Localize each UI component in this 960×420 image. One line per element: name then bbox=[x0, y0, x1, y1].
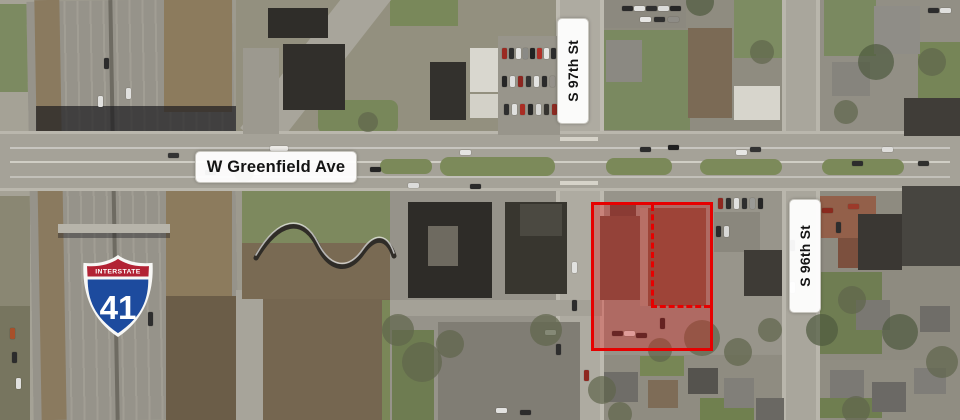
parcel-division-horizontal bbox=[651, 305, 710, 308]
map-canvas: INTERSTATE 41 W Greenfield Ave S 97th St… bbox=[0, 0, 960, 420]
annotation-layer: INTERSTATE 41 W Greenfield Ave S 97th St… bbox=[0, 0, 960, 420]
label-w-greenfield-ave: W Greenfield Ave bbox=[195, 151, 357, 183]
shield-route-number: 41 bbox=[100, 290, 137, 327]
label-s-96th-st: S 96th St bbox=[789, 199, 821, 313]
shield-interstate-text: INTERSTATE bbox=[95, 269, 141, 276]
label-s-97th-st: S 97th St bbox=[557, 18, 589, 124]
label-s-97th-st-text: S 97th St bbox=[565, 40, 581, 102]
highlighted-parcel bbox=[591, 202, 713, 351]
label-w-greenfield-ave-text: W Greenfield Ave bbox=[207, 158, 346, 177]
parcel-division-vertical bbox=[651, 205, 654, 305]
serpentine-wall bbox=[248, 198, 398, 298]
interstate-41-shield: INTERSTATE 41 bbox=[82, 253, 154, 339]
label-s-96th-st-text: S 96th St bbox=[797, 225, 813, 287]
